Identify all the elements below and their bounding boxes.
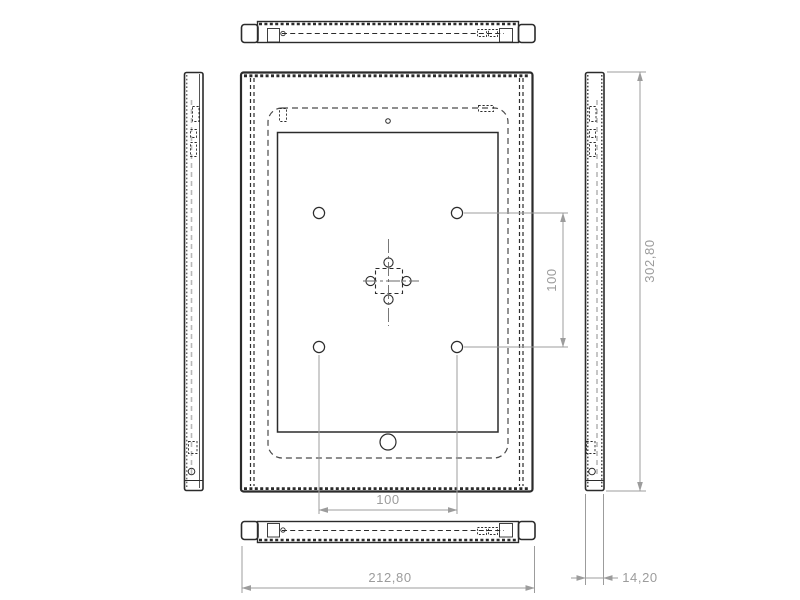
dim-label-overall-height: 302,80 xyxy=(642,239,657,282)
home-button-hole xyxy=(380,434,396,450)
front-view xyxy=(241,73,533,492)
dimension-depth: 14,20 xyxy=(571,494,658,585)
vesa-hole-bottom-right xyxy=(451,341,462,352)
top-view-right-cap xyxy=(519,25,536,43)
top-view-left-notch xyxy=(268,29,280,43)
left-side-hidden-cutout-1 xyxy=(193,107,200,122)
top-view-slot-1 xyxy=(478,30,487,37)
right-side-hidden-cutout-1 xyxy=(590,107,597,122)
top-view-left-cap xyxy=(242,25,259,43)
left-side-hidden-cutout-bottom xyxy=(189,442,198,454)
left-side-view xyxy=(185,73,204,491)
technical-drawing-canvas: 100 100 302,80 212,80 14,20 xyxy=(0,0,800,600)
bottom-view xyxy=(242,522,536,543)
right-side-hidden-cutout-3 xyxy=(590,143,596,157)
right-side-view xyxy=(586,73,605,491)
dimension-vesa-height: 100 xyxy=(464,213,568,347)
front-outer-frame xyxy=(241,73,533,492)
bottom-view-left-cap xyxy=(242,522,259,540)
vesa-hole-bottom-left xyxy=(313,341,324,352)
tablet-sim-cutout xyxy=(280,109,287,122)
dim-label-overall-width: 212,80 xyxy=(368,570,411,585)
vesa-hole-top-right xyxy=(451,207,462,218)
drawing-sheet: 100 100 302,80 212,80 14,20 xyxy=(0,0,800,600)
bottom-view-body xyxy=(258,522,519,543)
bottom-view-left-notch xyxy=(268,524,280,538)
top-view xyxy=(242,22,536,43)
dim-label-vesa-height: 100 xyxy=(544,268,559,292)
top-view-body xyxy=(258,22,519,43)
bottom-view-slot-2 xyxy=(489,528,498,535)
bottom-view-right-cap xyxy=(519,522,536,540)
front-camera-hole xyxy=(386,119,391,124)
dimension-overall-width: 212,80 xyxy=(242,546,535,593)
vesa-hole-top-left xyxy=(313,207,324,218)
bottom-view-screw-hole xyxy=(281,528,285,532)
center-cable-port xyxy=(363,239,419,326)
top-view-right-notch xyxy=(500,29,513,43)
dimension-overall-height: 302,80 xyxy=(606,72,657,491)
bottom-view-slot-1 xyxy=(478,528,487,535)
right-side-lock-hole xyxy=(589,468,596,475)
tablet-hidden-outline xyxy=(268,108,508,458)
screen-opening xyxy=(278,133,499,433)
dim-label-vesa-width: 100 xyxy=(376,492,400,507)
top-view-slot-2 xyxy=(489,30,498,37)
bottom-view-right-notch xyxy=(500,524,513,538)
right-side-hidden-cutout-2 xyxy=(590,130,596,138)
dim-label-depth: 14,20 xyxy=(622,570,658,585)
